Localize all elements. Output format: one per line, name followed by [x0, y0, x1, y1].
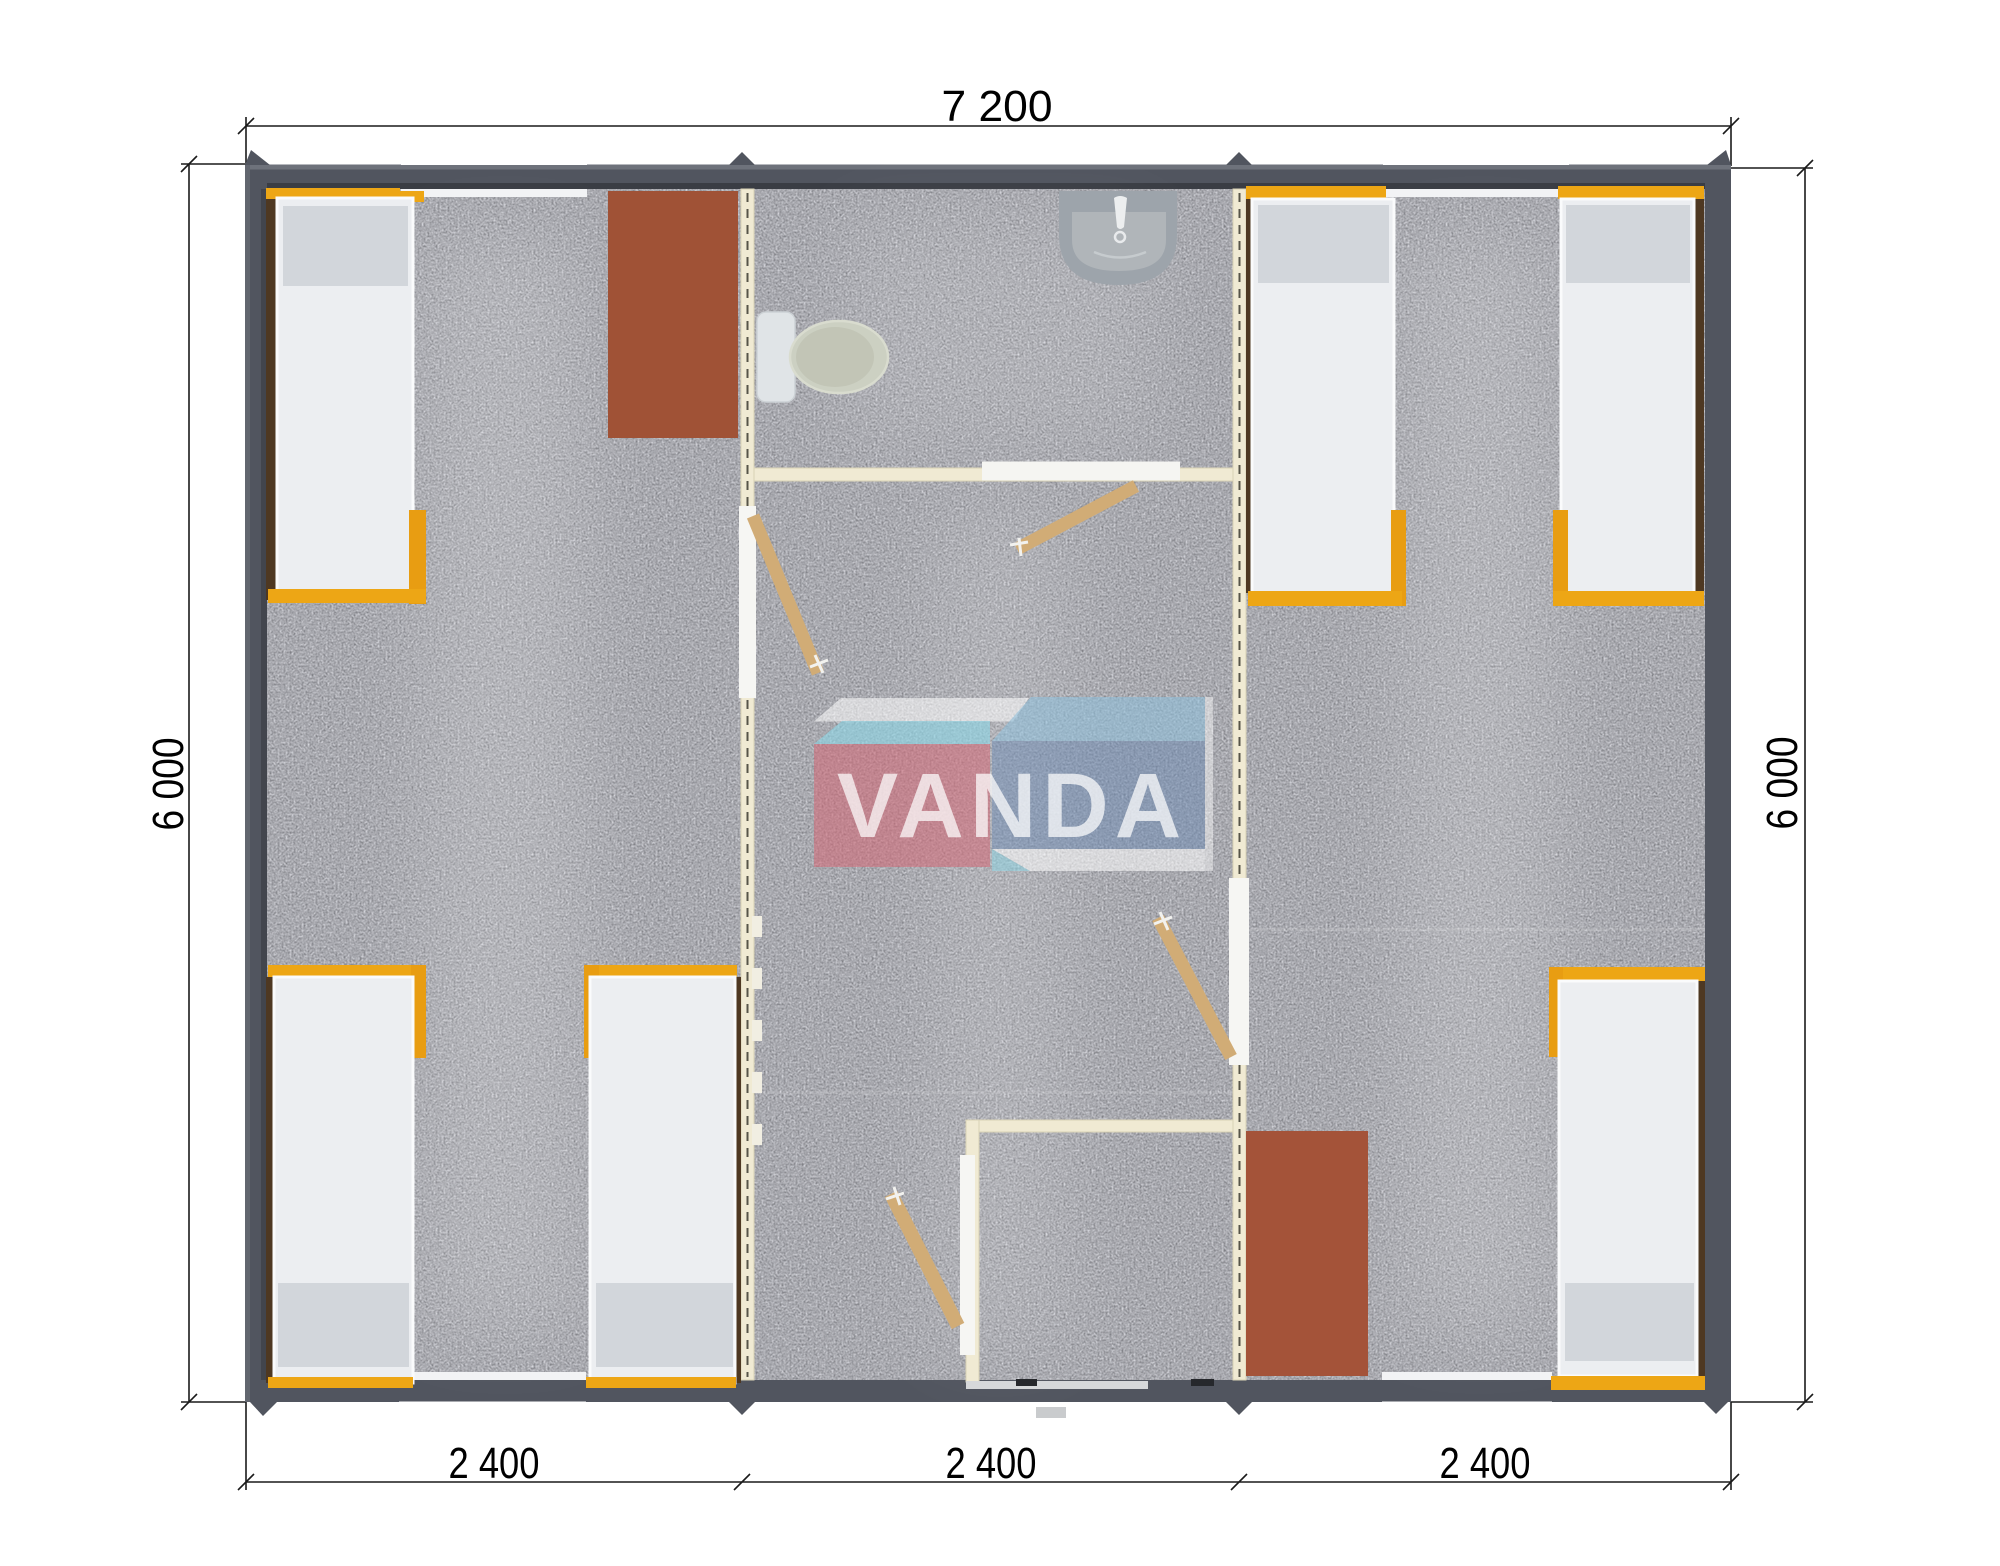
svg-text:VANDA: VANDA	[837, 755, 1187, 857]
svg-text:2 400: 2 400	[946, 1439, 1037, 1488]
svg-text:2 400: 2 400	[1440, 1439, 1531, 1488]
svg-text:2 400: 2 400	[449, 1439, 540, 1488]
svg-text:6 000: 6 000	[144, 738, 193, 831]
svg-text:6 000: 6 000	[1758, 737, 1807, 830]
svg-text:7 200: 7 200	[942, 82, 1053, 131]
